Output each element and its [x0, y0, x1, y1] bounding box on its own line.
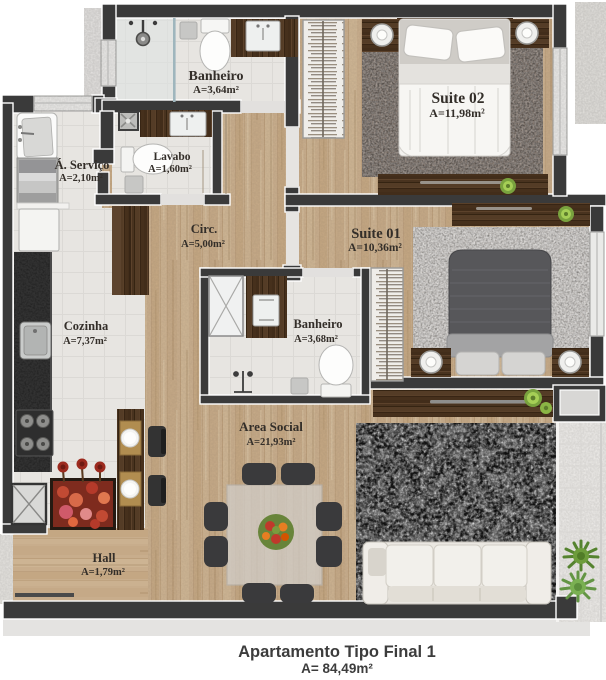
svg-text:A=1,60m²: A=1,60m² — [148, 164, 192, 175]
svg-text:A=11,98m²: A=11,98m² — [429, 106, 485, 120]
svg-text:Circ.: Circ. — [191, 222, 218, 236]
svg-text:Suite 02: Suite 02 — [432, 90, 485, 107]
svg-text:A=3,68m²: A=3,68m² — [294, 334, 338, 345]
svg-text:Lavabo: Lavabo — [153, 151, 190, 163]
svg-text:A=1,79m²: A=1,79m² — [81, 567, 125, 578]
svg-text:Hall: Hall — [93, 551, 116, 565]
svg-text:Á. Serviço: Á. Serviço — [55, 158, 110, 172]
svg-text:A=3,64m²: A=3,64m² — [193, 84, 240, 96]
svg-text:Banheiro: Banheiro — [293, 317, 342, 331]
svg-text:A=21,93m²: A=21,93m² — [246, 437, 295, 448]
svg-text:Suite 01: Suite 01 — [351, 226, 401, 242]
svg-text:A= 84,49m²: A= 84,49m² — [301, 661, 373, 676]
svg-text:A=5,00m²: A=5,00m² — [181, 239, 225, 250]
svg-text:A=2,10m²: A=2,10m² — [59, 173, 103, 184]
svg-text:Cozinha: Cozinha — [64, 319, 109, 333]
svg-text:A=7,37m²: A=7,37m² — [63, 336, 107, 347]
svg-text:A=10,36m²: A=10,36m² — [348, 242, 402, 254]
svg-text:Area Social: Area Social — [239, 419, 303, 434]
svg-text:Apartamento Tipo Final 1: Apartamento Tipo Final 1 — [238, 643, 436, 661]
svg-text:Banheiro: Banheiro — [189, 69, 244, 84]
